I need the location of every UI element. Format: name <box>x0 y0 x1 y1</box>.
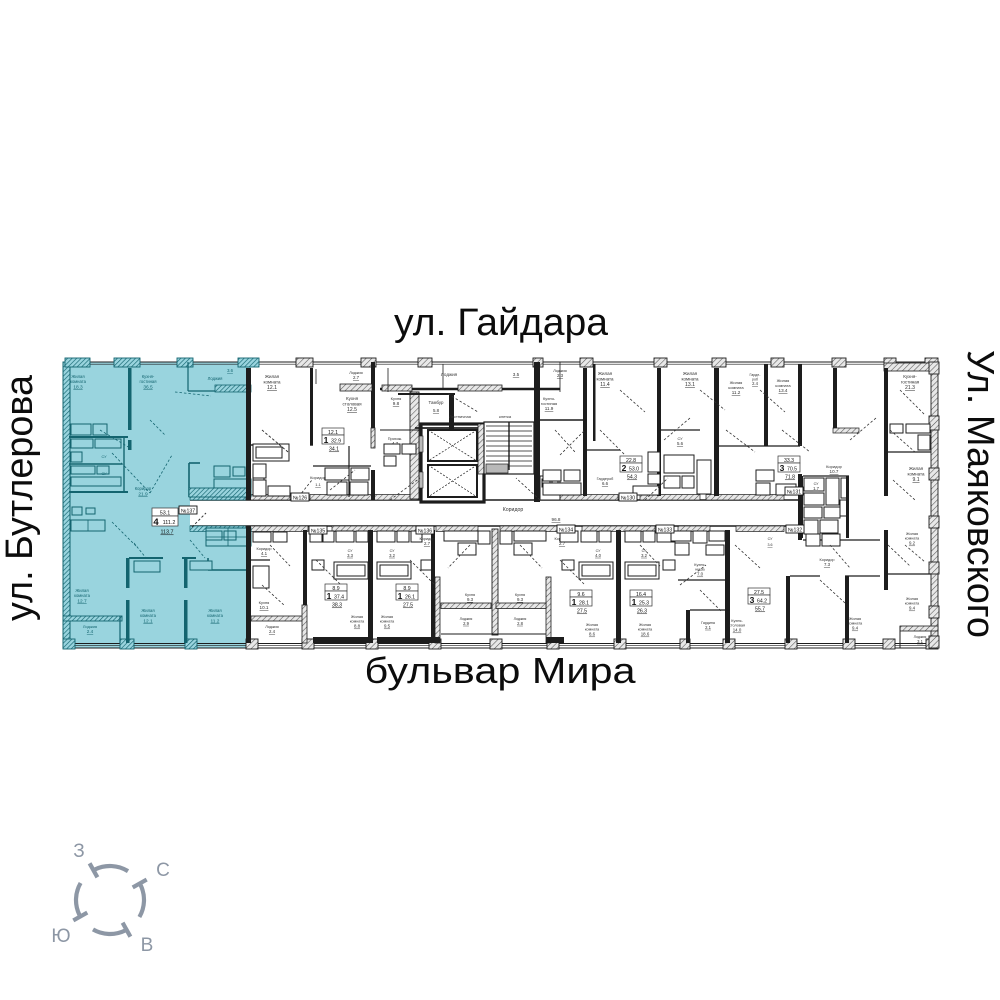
svg-text:ул. Гайдара: ул. Гайдара <box>394 302 609 344</box>
svg-text:№126: №126 <box>293 495 307 501</box>
svg-text:2.8: 2.8 <box>517 621 523 626</box>
svg-text:Лестничная: Лестничная <box>449 414 471 419</box>
svg-text:9.4: 9.4 <box>909 606 916 611</box>
svg-text:№135: №135 <box>311 528 325 534</box>
svg-text:Жилая: Жилая <box>586 623 598 627</box>
svg-text:9.1: 9.1 <box>912 477 919 483</box>
svg-text:5.8: 5.8 <box>433 408 440 413</box>
svg-text:53.0: 53.0 <box>629 467 639 473</box>
svg-text:8.6: 8.6 <box>589 632 596 637</box>
svg-text:111.2: 111.2 <box>163 520 176 526</box>
svg-text:№133: №133 <box>658 527 672 533</box>
svg-text:Жилая: Жилая <box>265 374 280 379</box>
svg-text:Жилая: Жилая <box>909 466 924 471</box>
svg-text:28.1: 28.1 <box>579 601 589 607</box>
svg-text:32.9: 32.9 <box>331 439 341 445</box>
svg-text:Жилая: Жилая <box>849 617 861 621</box>
svg-text:13.1: 13.1 <box>685 382 695 388</box>
svg-text:9.3: 9.3 <box>467 597 474 602</box>
svg-text:комната: комната <box>681 376 699 381</box>
svg-text:96.8: 96.8 <box>552 517 561 522</box>
svg-text:С: С <box>156 860 170 881</box>
svg-text:комната: комната <box>907 471 925 476</box>
svg-text:70.5: 70.5 <box>787 467 797 473</box>
svg-text:10.1: 10.1 <box>260 605 269 610</box>
svg-text:18.6: 18.6 <box>641 632 650 637</box>
svg-text:11.4: 11.4 <box>600 382 610 388</box>
svg-text:2.1: 2.1 <box>705 625 711 630</box>
svg-text:Ю: Ю <box>51 926 70 947</box>
svg-text:64.2: 64.2 <box>757 599 767 605</box>
svg-text:СУ: СУ <box>768 537 773 541</box>
svg-text:3.1: 3.1 <box>917 639 923 644</box>
svg-text:3.2: 3.2 <box>641 553 647 558</box>
svg-text:4.1: 4.1 <box>261 551 268 556</box>
svg-text:14.0: 14.0 <box>733 628 742 633</box>
svg-text:2.4: 2.4 <box>752 381 758 386</box>
svg-text:3.6: 3.6 <box>768 543 773 547</box>
svg-text:36.5: 36.5 <box>143 384 153 390</box>
svg-text:9.2: 9.2 <box>909 541 916 546</box>
svg-text:№137: №137 <box>181 508 195 514</box>
svg-text:18.3: 18.3 <box>73 384 83 390</box>
svg-text:1: 1 <box>398 591 403 601</box>
svg-text:21.9: 21.9 <box>138 491 148 497</box>
svg-text:2.4: 2.4 <box>87 629 94 634</box>
svg-text:27.5: 27.5 <box>577 609 587 615</box>
svg-text:12.7: 12.7 <box>77 598 87 604</box>
svg-text:25.3: 25.3 <box>639 601 649 607</box>
svg-text:2.3: 2.3 <box>557 373 564 378</box>
svg-text:3: 3 <box>780 463 785 473</box>
svg-text:21.3: 21.3 <box>905 385 915 391</box>
svg-text:бульвар Мира: бульвар Мира <box>365 650 637 691</box>
svg-text:27.5: 27.5 <box>403 603 413 609</box>
svg-text:№136: №136 <box>418 528 432 534</box>
svg-text:1: 1 <box>632 597 637 607</box>
svg-text:№131: №131 <box>787 489 801 495</box>
svg-text:9.5: 9.5 <box>384 624 391 629</box>
svg-text:1: 1 <box>327 591 332 601</box>
svg-text:Кухня-: Кухня- <box>903 374 917 379</box>
svg-text:54.3: 54.3 <box>627 475 637 481</box>
svg-text:Тамбур: Тамбур <box>429 400 444 405</box>
svg-text:гостиная: гостиная <box>139 379 156 384</box>
svg-text:ул. Бутлерова: ул. Бутлерова <box>0 374 41 621</box>
svg-text:2.7: 2.7 <box>424 541 431 546</box>
svg-text:Коридор: Коридор <box>135 486 152 491</box>
svg-text:113.7: 113.7 <box>160 530 173 536</box>
svg-text:3.6: 3.6 <box>227 368 233 373</box>
svg-text:Жилая: Жилая <box>683 371 698 376</box>
svg-text:4: 4 <box>153 517 159 528</box>
svg-text:комната: комната <box>140 613 157 618</box>
svg-text:26.3: 26.3 <box>637 609 647 615</box>
svg-text:Кухня-: Кухня- <box>731 619 743 623</box>
svg-text:комната: комната <box>70 379 87 384</box>
svg-text:Жилая: Жилая <box>906 532 918 536</box>
svg-text:1: 1 <box>324 435 329 445</box>
svg-text:11.2: 11.2 <box>211 618 220 624</box>
svg-text:Коридор: Коридор <box>310 475 327 480</box>
svg-text:4.0: 4.0 <box>595 553 601 558</box>
svg-text:1.1: 1.1 <box>315 482 321 487</box>
svg-text:СУ: СУ <box>101 472 107 476</box>
svg-text:6.6: 6.6 <box>602 481 609 486</box>
svg-text:Жилая: Жилая <box>381 615 393 619</box>
svg-text:55.7: 55.7 <box>755 607 765 613</box>
svg-text:№134: №134 <box>559 527 573 533</box>
svg-text:2.7: 2.7 <box>353 375 360 380</box>
svg-text:Жилая: Жилая <box>351 615 363 619</box>
svg-text:клетка: клетка <box>499 414 512 419</box>
svg-text:Гарде-: Гарде- <box>750 373 762 377</box>
svg-text:Кухня: Кухня <box>346 396 359 401</box>
svg-text:Ул. Маяковского: Ул. Маяковского <box>959 350 1000 638</box>
svg-text:37.4: 37.4 <box>334 595 344 601</box>
svg-text:Лоджия: Лоджия <box>208 376 223 381</box>
svg-text:9.3: 9.3 <box>517 597 524 602</box>
svg-text:СУ: СУ <box>101 455 107 459</box>
svg-text:Лоджия: Лоджия <box>441 372 458 377</box>
svg-text:3.2: 3.2 <box>389 553 395 558</box>
svg-text:комната: комната <box>263 379 281 384</box>
svg-text:11.2: 11.2 <box>732 390 741 395</box>
svg-text:13.4: 13.4 <box>779 388 788 393</box>
svg-text:2.9: 2.9 <box>463 621 469 626</box>
svg-text:7.0: 7.0 <box>697 572 704 577</box>
svg-text:11.9: 11.9 <box>545 406 554 411</box>
svg-text:12.5: 12.5 <box>347 407 357 413</box>
svg-text:З: З <box>73 841 84 862</box>
svg-text:гостиная: гостиная <box>901 379 920 384</box>
svg-text:2.4: 2.4 <box>269 629 276 634</box>
svg-text:1: 1 <box>572 597 577 607</box>
svg-text:71.8: 71.8 <box>785 475 795 481</box>
svg-text:3.3: 3.3 <box>347 553 353 558</box>
svg-text:10.7: 10.7 <box>830 469 839 474</box>
svg-text:12.1: 12.1 <box>143 618 153 624</box>
svg-text:12.1: 12.1 <box>267 385 277 391</box>
svg-text:Жилая: Жилая <box>598 371 613 376</box>
svg-text:В: В <box>141 935 154 956</box>
svg-text:3.5: 3.5 <box>513 372 520 377</box>
svg-text:комната: комната <box>74 593 91 598</box>
svg-text:53.1: 53.1 <box>160 511 171 517</box>
svg-text:1.7: 1.7 <box>813 486 819 491</box>
svg-text:Кухня-: Кухня- <box>694 563 706 567</box>
svg-text:9.4: 9.4 <box>852 626 859 631</box>
svg-text:8.8: 8.8 <box>354 624 361 629</box>
svg-text:3: 3 <box>750 595 755 605</box>
svg-text:7.3: 7.3 <box>824 562 831 567</box>
svg-text:№132: №132 <box>788 527 802 533</box>
svg-text:Жилая: Жилая <box>906 597 918 601</box>
svg-text:Коридор: Коридор <box>503 507 524 513</box>
svg-text:Жилая: Жилая <box>639 623 651 627</box>
svg-text:2: 2 <box>622 463 627 473</box>
svg-text:34.1: 34.1 <box>329 447 339 453</box>
svg-text:комната: комната <box>207 613 224 618</box>
svg-text:38.3: 38.3 <box>332 603 342 609</box>
svg-text:5.6: 5.6 <box>677 441 684 446</box>
svg-text:столовая: столовая <box>342 401 362 406</box>
svg-text:26.1: 26.1 <box>405 595 415 601</box>
svg-text:комната: комната <box>596 376 614 381</box>
svg-text:№130: №130 <box>621 495 635 501</box>
svg-text:9.8: 9.8 <box>393 401 400 406</box>
